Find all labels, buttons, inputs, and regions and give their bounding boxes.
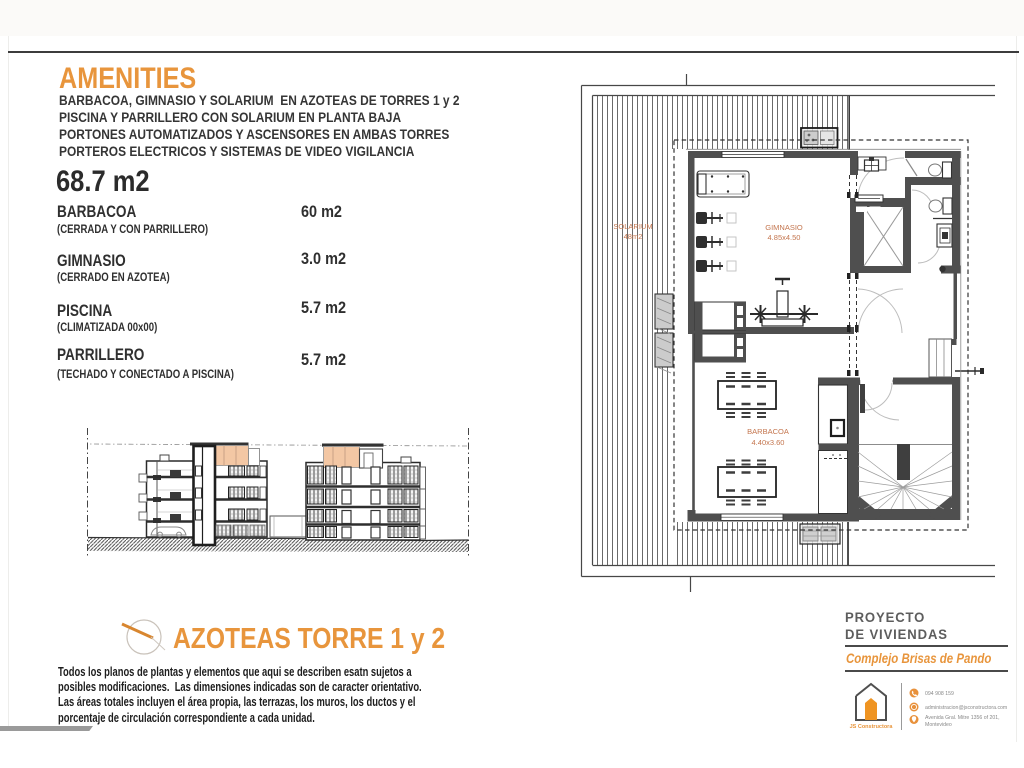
svg-text:Montevideo: Montevideo [925, 722, 952, 728]
svg-text:SOLARIUM: SOLARIUM [613, 222, 652, 231]
svg-text:4.40x3.60: 4.40x3.60 [752, 438, 785, 447]
svg-text:48m2: 48m2 [624, 232, 643, 241]
svg-text:BARBACOA: BARBACOA [747, 427, 789, 436]
svg-text:094 908 159: 094 908 159 [925, 691, 954, 697]
svg-text:administracion@jsconstructora.: administracion@jsconstructora.com [925, 705, 1007, 711]
svg-text:Avenida Gral. Mitre 1356 of 20: Avenida Gral. Mitre 1356 of 201, [925, 715, 1000, 721]
svg-text:GIMNASIO: GIMNASIO [765, 223, 803, 232]
svg-text:JS Constructora: JS Constructora [850, 724, 894, 730]
svg-text:4.85x4.50: 4.85x4.50 [768, 233, 801, 242]
